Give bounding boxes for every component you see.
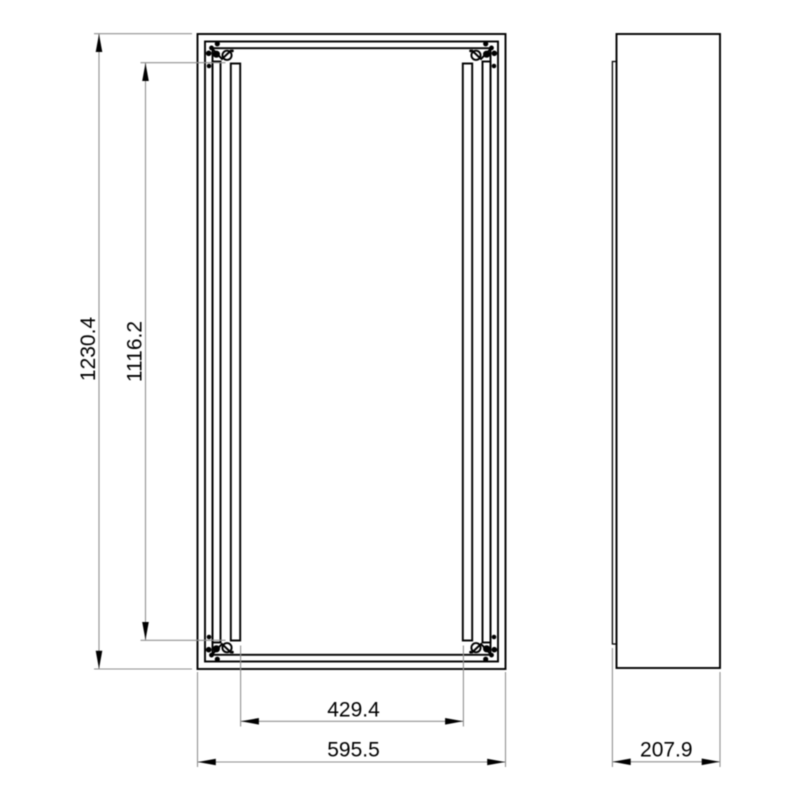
svg-text:595.5: 595.5 — [327, 738, 380, 761]
svg-text:207.9: 207.9 — [640, 738, 693, 761]
svg-text:1116.2: 1116.2 — [124, 321, 147, 382]
svg-text:429.4: 429.4 — [327, 699, 380, 722]
svg-text:1230.4: 1230.4 — [77, 317, 100, 382]
